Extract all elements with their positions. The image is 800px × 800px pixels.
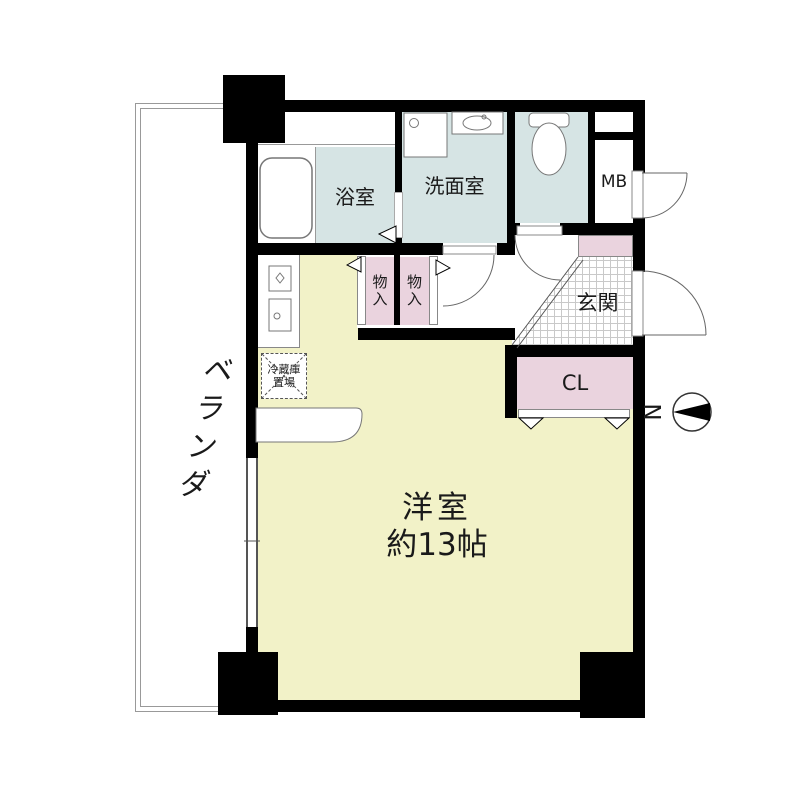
wall [505,345,517,418]
storage-left-label: 物入 [366,257,394,325]
main-room-name: 洋室 [402,490,472,527]
north-label: N [640,398,668,426]
entrance-label: 玄関 [560,288,635,316]
fridge-space-line1: 冷蔵庫 [268,363,301,376]
wall [246,625,258,655]
main-room-size: 約13帖 [386,527,487,564]
meter-box-door [632,171,687,218]
hallway [438,255,512,328]
wall [394,255,400,325]
closet-door [518,409,630,418]
floor-plan: ベランダ 浴室 洗面室 MB 物入 物入 玄関 CL 冷蔵庫 置場 洋室 約13… [0,0,800,800]
bath-label: 浴室 [315,147,395,243]
window [246,458,258,627]
closet-label: CL [517,357,633,409]
wall [633,100,645,173]
fridge-space-line2: 置場 [273,376,295,389]
wall [510,223,520,235]
shoe-cabinet [578,235,633,257]
bath-edge-line [253,144,395,145]
meter-box-label: MB [595,140,633,223]
wall [358,328,515,340]
fridge-space-label: 冷蔵庫 置場 [261,353,307,399]
pillar [218,652,278,715]
pillar [223,75,285,143]
wall [633,218,645,272]
wall [595,132,633,140]
wall [505,345,633,357]
entry-door [632,271,706,336]
wall [560,223,633,235]
wall [246,140,258,460]
wall [588,112,595,235]
toilet-room [515,112,588,223]
storage-right-door [429,256,438,325]
main-room-label: 洋室 約13帖 [337,485,537,569]
storage-right-label: 物入 [400,257,429,325]
kitchen-counter-strip [258,255,300,348]
storage-left-door [357,256,366,325]
washroom-label: 洗面室 [402,162,507,206]
wall [280,100,645,112]
wall [246,243,443,255]
bath-door [394,192,403,238]
north-arrow-icon [673,393,711,431]
pillar [580,652,642,718]
